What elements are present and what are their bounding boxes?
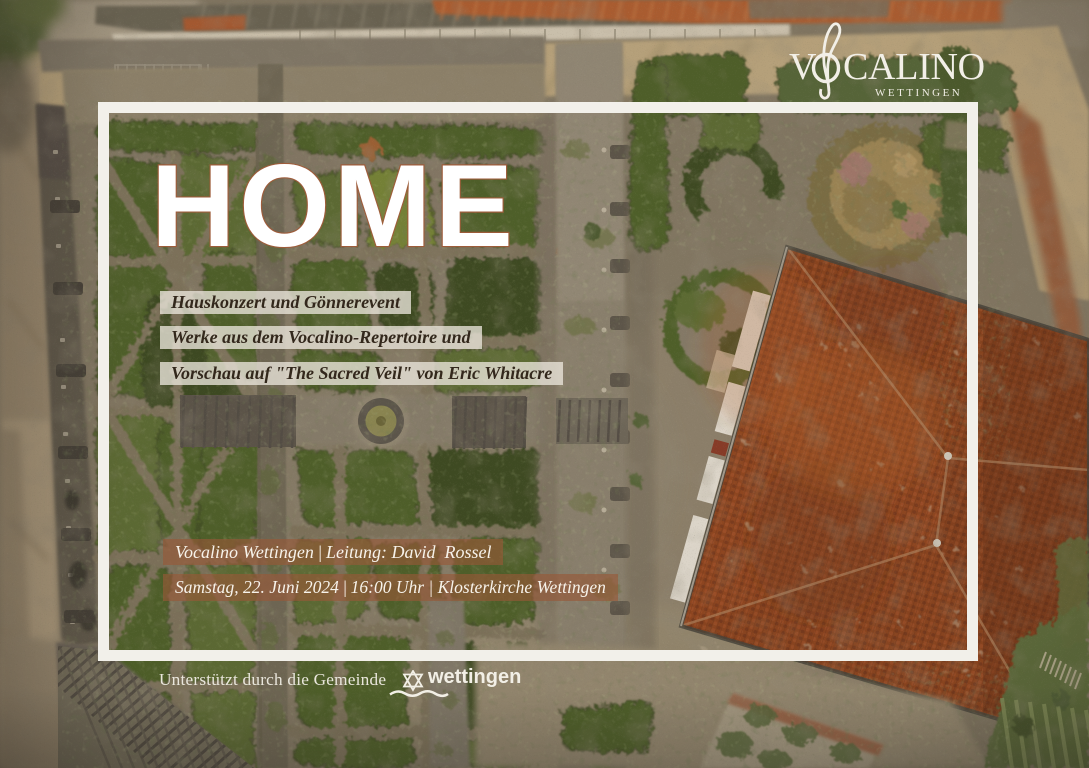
svg-text:HOME: HOME	[151, 140, 517, 271]
